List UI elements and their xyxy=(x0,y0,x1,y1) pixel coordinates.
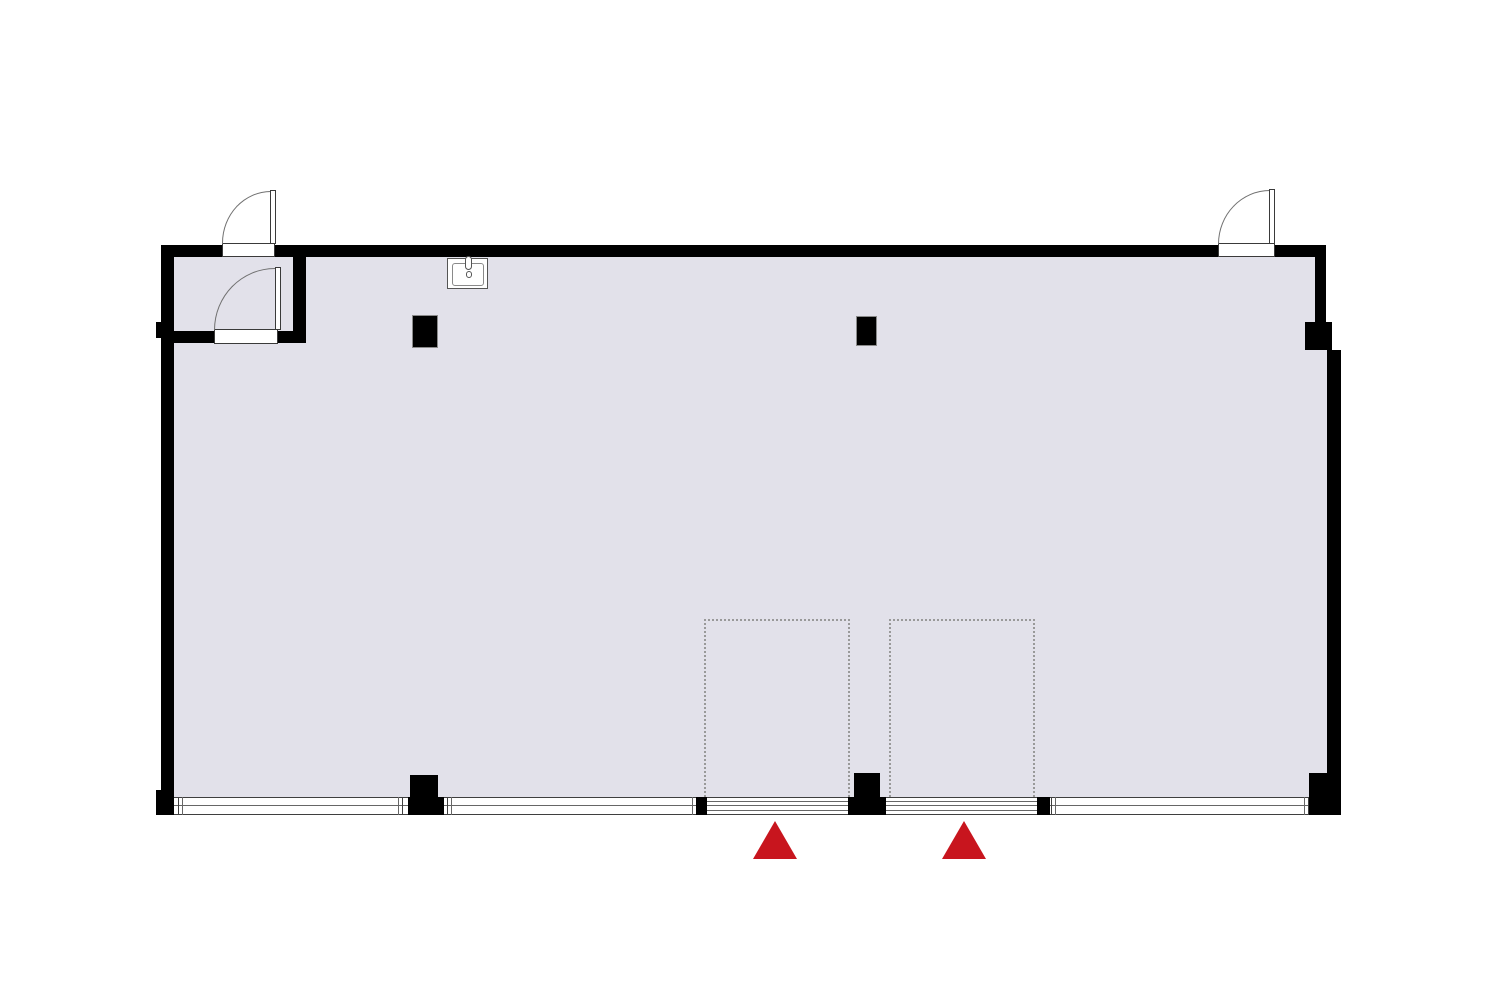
right-wall-lower xyxy=(1327,350,1341,815)
exterior-door-top-right-swing-arc xyxy=(1218,190,1270,244)
band-separator-right xyxy=(1037,797,1050,816)
faucet-icon xyxy=(465,256,472,270)
top-wall xyxy=(161,245,1326,257)
entrance-track-line xyxy=(706,801,848,802)
right-bottom-corner-block xyxy=(1309,773,1341,815)
window-bottom-left xyxy=(178,797,403,816)
entrance-marker-right xyxy=(942,821,986,859)
exterior-door-top-left-swing-arc xyxy=(222,191,272,244)
entrance-track-line xyxy=(886,801,1037,802)
entrance-opening-right xyxy=(886,797,1037,816)
entrance-opening-left xyxy=(706,797,848,816)
main-room-floor-right-strip xyxy=(1315,322,1327,797)
pillar-bottom-left-base xyxy=(408,797,445,815)
pillar-right-wall-jog xyxy=(1305,322,1332,351)
left-wall-foot xyxy=(156,790,174,815)
left-wall xyxy=(161,245,174,797)
exterior-door-top-right-threshold xyxy=(1218,243,1275,257)
dashed-area-left xyxy=(704,619,850,797)
pillar-bottom-left-top xyxy=(410,775,438,798)
drain-icon xyxy=(466,271,473,278)
exterior-door-top-right-leaf xyxy=(1269,189,1275,244)
pillar-top-center xyxy=(856,316,877,346)
entrance-marker-left xyxy=(753,821,797,859)
exterior-door-top-left-threshold xyxy=(222,243,276,257)
dashed-area-right xyxy=(889,619,1035,797)
floor-plan xyxy=(0,0,1500,1000)
pillar-top-left xyxy=(412,315,438,348)
left-wall-nub xyxy=(156,322,162,338)
pillar-bottom-center-top xyxy=(854,773,880,798)
vestibule-door-threshold xyxy=(214,329,278,344)
window-bottom-center xyxy=(447,797,697,816)
entrance-track-line xyxy=(706,810,848,811)
band-separator-left xyxy=(696,797,707,816)
window-bottom-right xyxy=(1051,797,1309,816)
entrance-track-line xyxy=(886,810,1037,811)
pillar-bottom-center-base xyxy=(848,797,886,815)
right-wall-upper xyxy=(1315,257,1326,322)
exterior-door-top-left-leaf xyxy=(270,190,276,244)
vestibule-interior-door-leaf xyxy=(275,267,281,330)
